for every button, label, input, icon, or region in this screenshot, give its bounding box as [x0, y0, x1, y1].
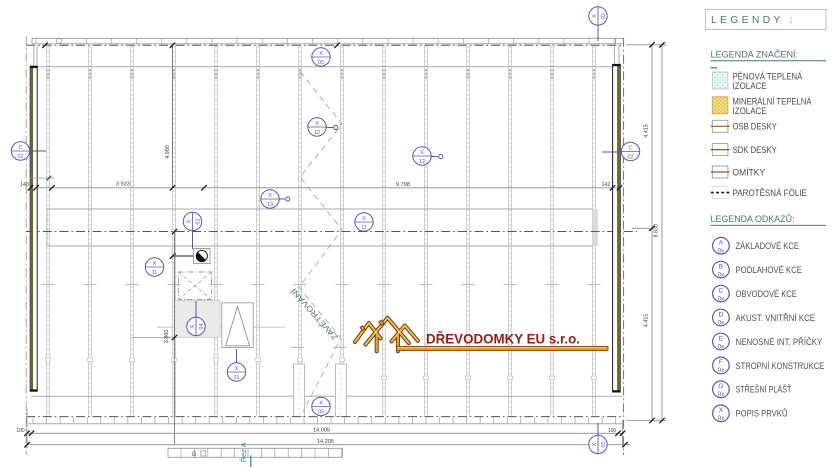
svg-text:MINERÁLNÍ TEPELNÁ: MINERÁLNÍ TEPELNÁ	[733, 96, 812, 106]
svg-text:0x: 0x	[718, 271, 725, 278]
svg-text:ZÁKLADOVÉ KCE: ZÁKLADOVÉ KCE	[736, 241, 799, 251]
svg-text:OMÍTKY: OMÍTKY	[733, 167, 766, 177]
svg-text:IZOLACE: IZOLACE	[733, 81, 767, 91]
svg-text:DŘEVODOMKY EU s.r.o.: DŘEVODOMKY EU s.r.o.	[426, 331, 580, 346]
svg-text:X: X	[420, 150, 424, 156]
svg-text:X: X	[187, 219, 193, 223]
svg-text:X: X	[153, 261, 157, 267]
svg-text:9 798: 9 798	[396, 182, 410, 188]
svg-text:X: X	[268, 193, 272, 199]
svg-text:LEGENDA ZNAČENÍ:: LEGENDA ZNAČENÍ:	[711, 50, 799, 61]
svg-text:8.830: 8.830	[654, 224, 660, 238]
svg-text:X: X	[319, 51, 323, 57]
svg-text:LEGENDA ODKAZŮ:: LEGENDA ODKAZŮ:	[711, 213, 795, 225]
svg-text:3.860: 3.860	[164, 330, 170, 344]
svg-text:X: X	[235, 366, 239, 372]
svg-text:PAROTĚSNÁ FÓLIE: PAROTĚSNÁ FÓLIE	[733, 188, 807, 198]
svg-text:X: X	[592, 14, 598, 18]
svg-text:NENOSNÉ INT. PŘÍČKY: NENOSNÉ INT. PŘÍČKY	[736, 337, 823, 347]
svg-text:02: 02	[195, 219, 201, 225]
svg-text:02: 02	[601, 442, 607, 448]
svg-text:142: 142	[602, 182, 611, 188]
svg-text:X: X	[315, 121, 319, 127]
svg-text:02: 02	[18, 154, 24, 160]
svg-text:4.415: 4.415	[644, 124, 650, 138]
svg-text:A: A	[719, 240, 724, 247]
svg-text:X: X	[362, 216, 366, 222]
svg-text:E: E	[719, 335, 724, 342]
svg-text:0x: 0x	[718, 367, 725, 374]
svg-text:Řez A: Řez A	[239, 442, 248, 462]
svg-text:D: D	[719, 311, 724, 318]
svg-text:12: 12	[314, 130, 320, 136]
svg-text:05: 05	[318, 60, 324, 66]
svg-text:STROPNÍ KONSTRUKCE: STROPNÍ KONSTRUKCE	[736, 361, 825, 371]
svg-text:X: X	[319, 401, 323, 407]
svg-text:C: C	[629, 146, 633, 152]
svg-text:11: 11	[361, 225, 367, 231]
svg-text:02: 02	[628, 154, 634, 160]
svg-text:OBVODOVÉ KCE: OBVODOVÉ KCE	[736, 289, 797, 299]
svg-text:05: 05	[318, 409, 324, 415]
svg-text:POPIS PRVKŮ: POPIS PRVKŮ	[736, 408, 788, 419]
svg-text:OSB DESKY: OSB DESKY	[733, 122, 777, 132]
svg-text:148: 148	[20, 182, 29, 188]
svg-text:0x: 0x	[718, 391, 725, 398]
svg-text:B: B	[719, 263, 724, 270]
svg-text:G: G	[718, 383, 723, 390]
svg-text:0x: 0x	[718, 248, 725, 255]
svg-text:3 923: 3 923	[116, 182, 130, 188]
svg-text:SDK DESKY: SDK DESKY	[733, 145, 777, 155]
svg-text:C: C	[719, 287, 724, 294]
svg-text:PĚNOVÁ TEPLENÁ: PĚNOVÁ TEPLENÁ	[733, 72, 803, 82]
svg-text:01: 01	[234, 375, 240, 381]
svg-text:STŘEŠNÍ PLÁŠŤ: STŘEŠNÍ PLÁŠŤ	[736, 385, 792, 395]
svg-text:C: C	[19, 145, 23, 151]
svg-text:0x: 0x	[718, 343, 725, 350]
svg-text:IZOLACE: IZOLACE	[733, 106, 767, 116]
svg-text:0x: 0x	[718, 415, 725, 422]
svg-text:100: 100	[608, 428, 617, 434]
svg-text:13: 13	[267, 202, 273, 208]
svg-text:0x: 0x	[718, 295, 725, 302]
svg-text:X: X	[190, 324, 196, 328]
svg-text:14.005: 14.005	[313, 428, 330, 434]
svg-text:G: G	[192, 451, 197, 458]
svg-text:4.415: 4.415	[644, 314, 650, 328]
svg-text:4.990: 4.990	[165, 145, 171, 159]
svg-text:14.205: 14.205	[317, 439, 334, 445]
svg-text:04: 04	[199, 324, 205, 330]
svg-text:02: 02	[601, 13, 607, 19]
svg-text:12: 12	[419, 159, 425, 165]
svg-text:0x: 0x	[718, 319, 725, 326]
svg-text:PODLAHOVÉ KCE: PODLAHOVÉ KCE	[736, 265, 802, 275]
svg-text:X: X	[719, 407, 724, 414]
svg-text:X: X	[592, 442, 598, 446]
svg-text:AKUST. VNITŘNÍ KCE: AKUST. VNITŘNÍ KCE	[736, 313, 816, 323]
svg-text:100: 100	[16, 428, 25, 434]
svg-text:F: F	[719, 359, 723, 366]
svg-text:11: 11	[152, 270, 158, 276]
